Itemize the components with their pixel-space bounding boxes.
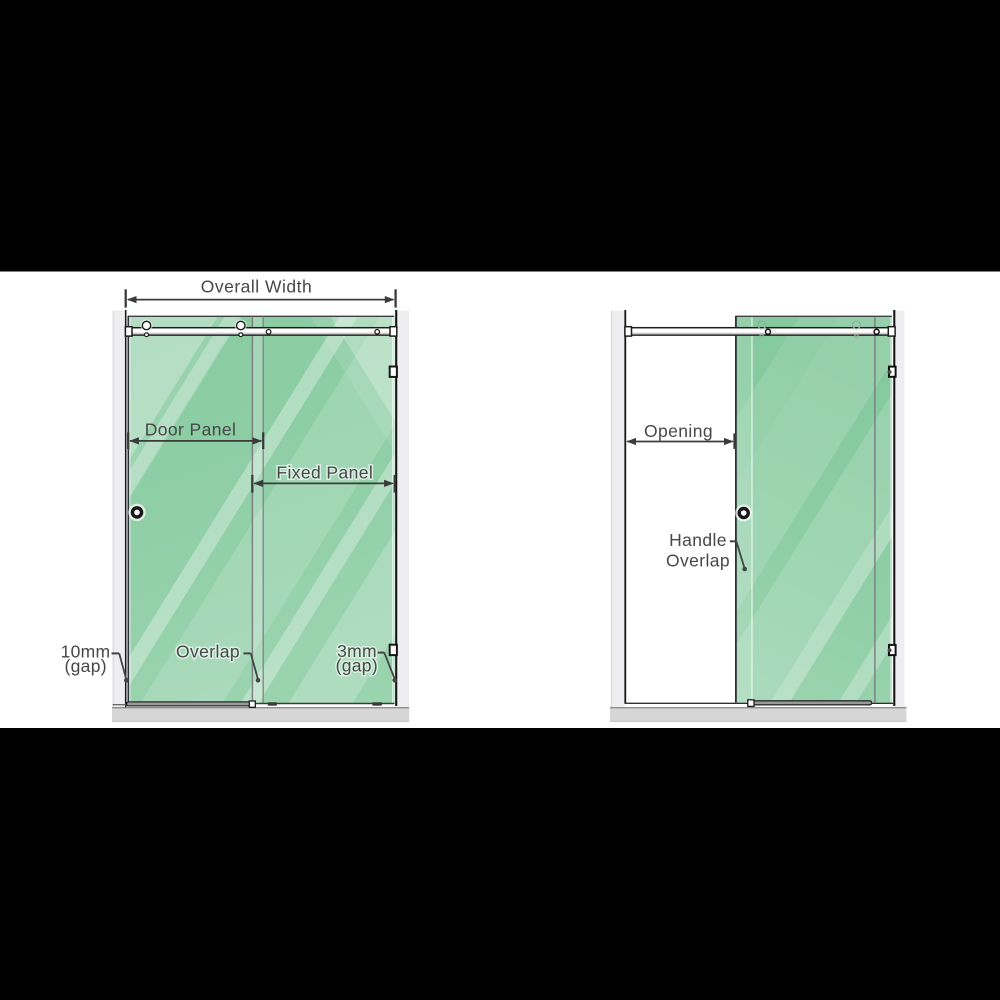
svg-text:Opening: Opening [644, 421, 713, 441]
svg-text:Overlap: Overlap [176, 642, 240, 662]
svg-text:(gap): (gap) [65, 656, 107, 676]
svg-text:(gap): (gap) [336, 656, 378, 676]
svg-text:Fixed Panel: Fixed Panel [276, 463, 373, 483]
svg-text:Door Panel: Door Panel [145, 420, 237, 440]
svg-text:Overall Width: Overall Width [201, 277, 313, 297]
svg-text:Overlap: Overlap [666, 551, 730, 571]
svg-text:Handle: Handle [669, 530, 727, 550]
